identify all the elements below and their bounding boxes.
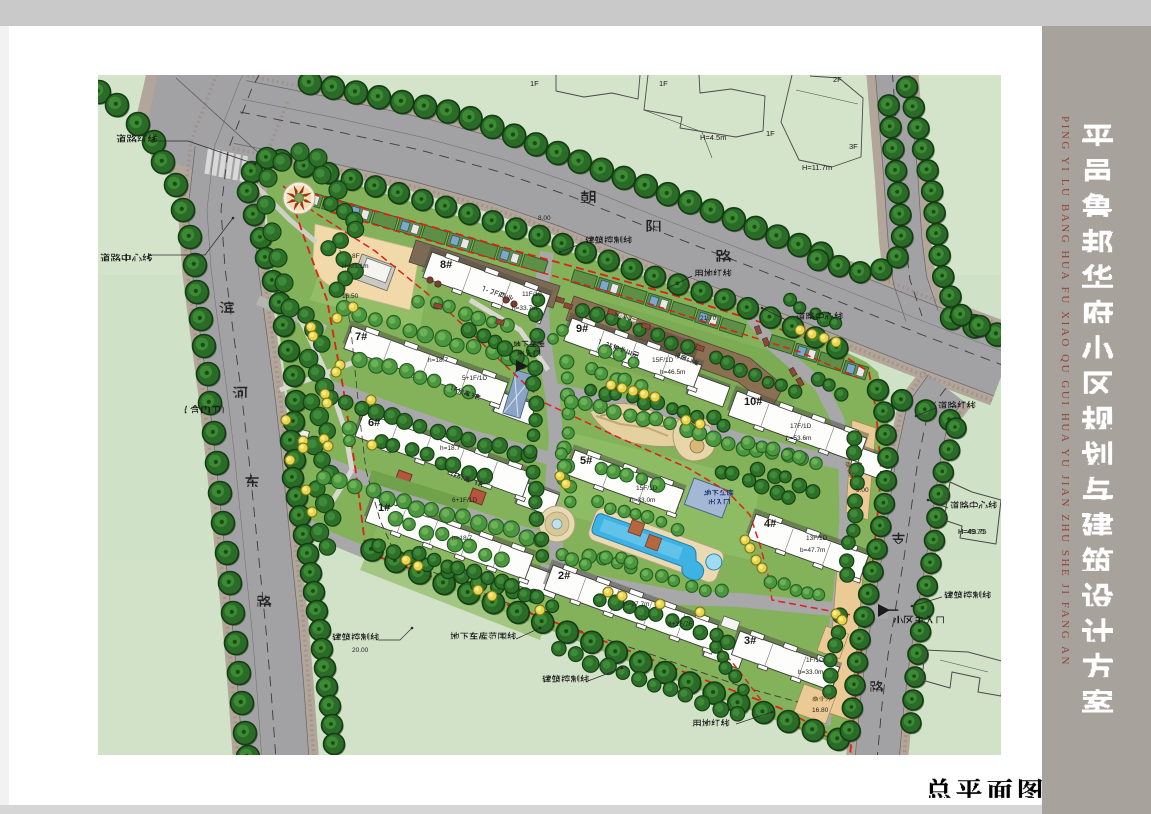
svg-text:1F: 1F bbox=[530, 79, 539, 88]
svg-text:1F: 1F bbox=[659, 79, 668, 88]
svg-text:17F/1D: 17F/1D bbox=[790, 423, 812, 430]
svg-text:8#: 8# bbox=[440, 259, 452, 271]
svg-text:16.50: 16.50 bbox=[342, 293, 359, 300]
svg-text:8F: 8F bbox=[352, 253, 360, 260]
svg-text:4#: 4# bbox=[764, 518, 776, 530]
svg-text:21.70: 21.70 bbox=[700, 315, 717, 322]
svg-text:11F/10: 11F/10 bbox=[522, 291, 542, 298]
svg-text:5+1F/1D: 5+1F/1D bbox=[462, 375, 487, 382]
svg-text:H=4.5m: H=4.5m bbox=[700, 133, 726, 142]
svg-text:h=33.0m: h=33.0m bbox=[630, 497, 655, 504]
svg-text:b=53.6m: b=53.6m bbox=[786, 435, 811, 442]
svg-text:1#: 1# bbox=[378, 502, 390, 514]
svg-text:3F: 3F bbox=[849, 142, 858, 151]
svg-text:PING YI LU BANG HUA FU XIAO QU: PING YI LU BANG HUA FU XIAO QU GUI HUA Y… bbox=[1059, 116, 1071, 667]
svg-text:6+1F/1D: 6+1F/1D bbox=[452, 497, 477, 504]
svg-text:h=33.7m: h=33.7m bbox=[512, 305, 537, 312]
svg-text:H=31.1m: H=31.1m bbox=[342, 263, 369, 270]
svg-text:h=18.7: h=18.7 bbox=[440, 445, 460, 452]
svg-text:13F/1D: 13F/1D bbox=[806, 535, 828, 542]
svg-text:8+1F/7F: 8+1F/7F bbox=[668, 621, 692, 628]
svg-text:15F/1D: 15F/1D bbox=[652, 357, 674, 364]
svg-text:b=47.7m: b=47.7m bbox=[800, 547, 825, 554]
svg-text:2F: 2F bbox=[833, 75, 842, 84]
svg-text:2#: 2# bbox=[558, 570, 570, 582]
svg-text:16.80: 16.80 bbox=[812, 707, 829, 714]
svg-text:10#: 10# bbox=[744, 396, 762, 408]
svg-text:6#: 6# bbox=[368, 417, 380, 429]
svg-text:h=27.7m: h=27.7m bbox=[624, 601, 649, 608]
svg-text:9#: 9# bbox=[576, 323, 588, 335]
svg-text:15F/1D: 15F/1D bbox=[636, 485, 658, 492]
svg-text:h=46.5m: h=46.5m bbox=[660, 369, 685, 376]
svg-text:7#: 7# bbox=[355, 331, 367, 343]
svg-text:3#: 3# bbox=[744, 635, 756, 647]
svg-text:H=11.7m: H=11.7m bbox=[802, 163, 832, 172]
svg-text:1F/1D: 1F/1D bbox=[806, 657, 824, 664]
svg-text:h=18.7: h=18.7 bbox=[428, 357, 448, 364]
svg-text:H=49.75: H=49.75 bbox=[958, 529, 985, 536]
svg-text:h=18.7: h=18.7 bbox=[452, 535, 472, 542]
svg-text:9.00: 9.00 bbox=[856, 487, 869, 494]
svg-text:20.00: 20.00 bbox=[352, 647, 369, 654]
svg-text:8.00: 8.00 bbox=[538, 215, 551, 222]
svg-text:5#: 5# bbox=[580, 455, 592, 467]
svg-text:b=33.0m: b=33.0m bbox=[798, 669, 823, 676]
svg-text:1F: 1F bbox=[766, 129, 775, 138]
